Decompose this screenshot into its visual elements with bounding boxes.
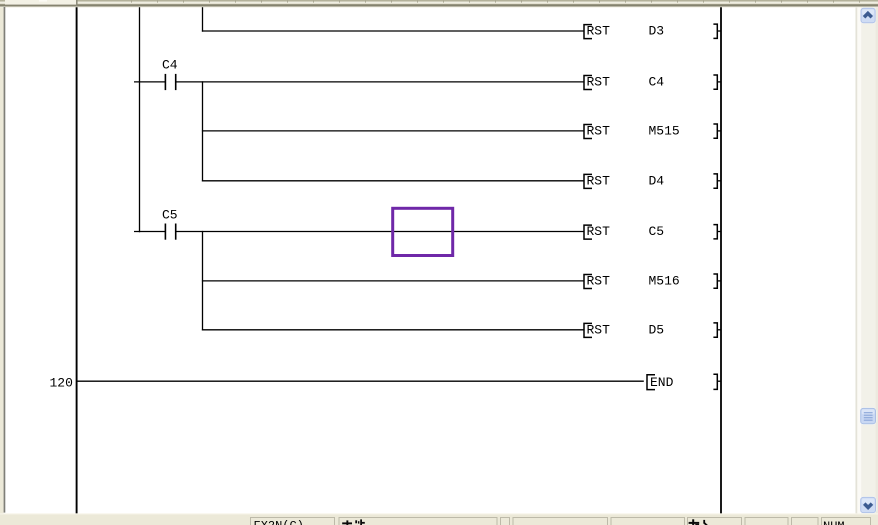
svg-text:FX2N(C): FX2N(C) — [254, 519, 304, 525]
svg-text:M515: M515 — [649, 124, 680, 139]
svg-text:M516: M516 — [649, 274, 680, 289]
svg-text:RST: RST — [587, 224, 611, 239]
svg-text:NUM: NUM — [823, 519, 845, 525]
svg-text:D5: D5 — [649, 322, 665, 337]
svg-text:C5: C5 — [162, 207, 178, 222]
svg-text:RST: RST — [587, 274, 611, 289]
svg-text:C4: C4 — [649, 75, 665, 90]
svg-text:RST: RST — [587, 322, 611, 337]
svg-text:D4: D4 — [649, 173, 665, 188]
svg-text:RST: RST — [587, 173, 611, 188]
svg-text:C4: C4 — [162, 58, 178, 73]
svg-text:C5: C5 — [649, 224, 665, 239]
svg-text:END: END — [650, 375, 674, 390]
svg-text:RST: RST — [587, 75, 611, 90]
svg-text:D3: D3 — [649, 24, 665, 39]
svg-text:RST: RST — [587, 24, 611, 39]
svg-text:120: 120 — [50, 375, 73, 390]
svg-text:RST: RST — [587, 124, 611, 139]
